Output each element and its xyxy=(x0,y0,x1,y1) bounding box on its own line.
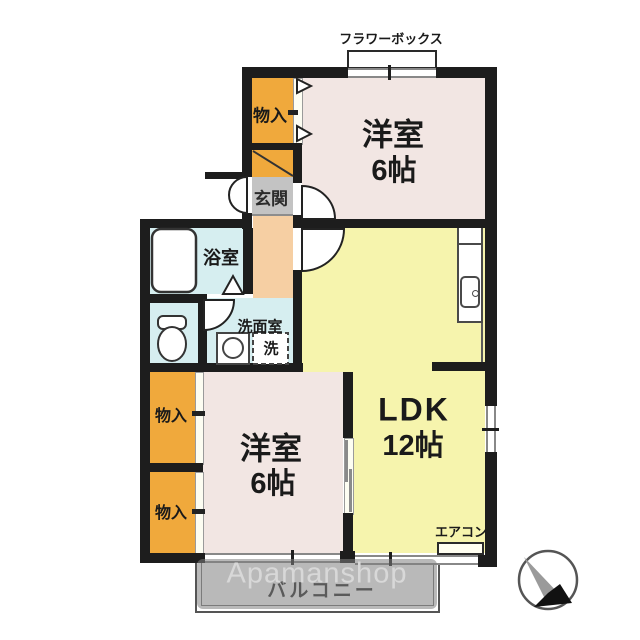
storage-bottom-door-track xyxy=(195,472,204,555)
window-right-tick xyxy=(482,428,499,431)
entrance-step-line xyxy=(252,214,293,216)
wall xyxy=(485,452,497,567)
compass-icon xyxy=(519,551,577,609)
compass-needle-black xyxy=(534,584,572,607)
floor-plan: バルコニー フラワーボックス 洋室 6帖 物入 玄関 浴室 洗面室 洗 LDK … xyxy=(0,0,640,640)
sliding-door-leaf-2 xyxy=(349,469,352,512)
western-room-2-size: 6帖 xyxy=(250,460,295,502)
aircon-label: エアコン xyxy=(435,522,487,541)
ldk-size: 12帖 xyxy=(382,422,443,464)
storage-entry-door-track xyxy=(293,78,303,145)
wall xyxy=(293,143,302,183)
wall xyxy=(140,363,303,372)
window-top-tick xyxy=(388,65,391,80)
wall xyxy=(140,553,205,563)
entrance-label: 玄関 xyxy=(254,185,288,210)
storage-mid-door-track xyxy=(195,372,204,465)
wall xyxy=(198,294,207,366)
kitchen-faucet xyxy=(472,290,479,297)
sliding-door-leaf-1 xyxy=(345,440,348,482)
wall xyxy=(293,270,302,372)
washroom-label: 洗面室 xyxy=(237,316,282,337)
wall xyxy=(243,228,253,294)
wall xyxy=(143,463,203,472)
washer-label: 洗 xyxy=(263,338,278,359)
wall xyxy=(246,143,295,150)
wall xyxy=(140,219,252,228)
entrance-door-arc xyxy=(229,177,247,213)
wall-kitchen-stub xyxy=(432,362,485,371)
watermark-text: Apamanshop xyxy=(227,558,408,591)
wall xyxy=(343,372,353,438)
kitchen-counter-divider xyxy=(458,243,482,245)
bathroom-label: 浴室 xyxy=(203,244,239,270)
compass-needle-gray xyxy=(524,557,560,601)
window-top xyxy=(348,68,436,78)
storage-bottom-label: 物入 xyxy=(155,499,187,523)
flower-box xyxy=(347,50,437,69)
toilet-area xyxy=(150,303,198,363)
wall xyxy=(485,67,497,406)
kitchen-counter xyxy=(457,225,483,323)
aircon-box xyxy=(437,542,484,555)
wall xyxy=(478,555,497,567)
storage-mid-label: 物入 xyxy=(155,402,187,426)
wall xyxy=(242,67,348,78)
western-room-1-size: 6帖 xyxy=(371,147,416,189)
wall xyxy=(242,67,252,177)
hallway-area xyxy=(253,216,293,298)
watermark-banner: Apamanshop xyxy=(197,559,437,609)
wall xyxy=(293,219,485,228)
wall-entrance-stub xyxy=(205,172,245,179)
shoe-cabinet-area xyxy=(252,150,293,177)
storage-entry-label: 物入 xyxy=(253,102,287,127)
wall xyxy=(140,219,150,563)
kitchen-edge-line xyxy=(481,323,483,362)
wall xyxy=(140,294,202,303)
flower-box-label: フラワーボックス xyxy=(339,29,443,48)
